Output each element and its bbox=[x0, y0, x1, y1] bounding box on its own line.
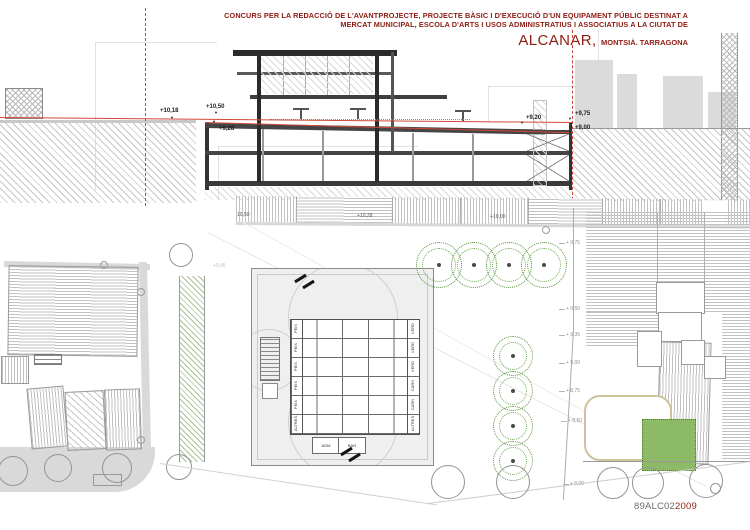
plan-level-label: + 8,75 bbox=[566, 389, 580, 394]
tree-icon bbox=[632, 467, 664, 499]
street-level-label: +10,28 bbox=[357, 214, 372, 219]
parcel-line bbox=[296, 196, 297, 222]
basement-column bbox=[472, 134, 474, 181]
plaza-level-label: +9,45 bbox=[213, 263, 226, 269]
title-city: ALCANAR, bbox=[518, 32, 596, 49]
existing-roof-hatch bbox=[26, 386, 68, 450]
manhole-icon bbox=[100, 261, 108, 269]
tree-icon bbox=[431, 465, 465, 499]
building-mass bbox=[575, 60, 613, 128]
stall-label: PEIX bbox=[290, 395, 301, 414]
sheet-code-year: 2009 bbox=[675, 501, 697, 512]
sheet-code: 89ALC022009 bbox=[634, 501, 697, 512]
basement-column bbox=[322, 131, 324, 181]
parcel bbox=[656, 282, 705, 314]
x-brace-panel bbox=[527, 134, 569, 151]
tree-icon bbox=[169, 243, 193, 267]
plan-level-label: + 8,50 bbox=[568, 419, 582, 424]
level-label: +10,18 bbox=[160, 108, 179, 114]
level-label: +9,75 bbox=[575, 111, 590, 117]
tree-icon bbox=[493, 406, 533, 446]
level-marker-icon bbox=[568, 131, 572, 135]
street-edge-line bbox=[160, 463, 437, 505]
green-plot bbox=[642, 419, 696, 471]
parcel bbox=[637, 331, 662, 367]
glazing-hatch bbox=[261, 56, 373, 94]
stall-label: ALTRES bbox=[407, 414, 418, 433]
stall-label: PEIX bbox=[290, 319, 301, 338]
stall-label: ALTRES bbox=[290, 414, 301, 433]
tree-icon bbox=[521, 242, 567, 288]
stall-label: CARN bbox=[407, 376, 418, 395]
basement-wall bbox=[205, 122, 209, 190]
plan-level-label: + 9,00 bbox=[566, 361, 580, 366]
canopy-slab bbox=[250, 95, 447, 99]
ground-hatch-left bbox=[0, 120, 196, 203]
building-mass bbox=[663, 76, 703, 128]
stall-grid bbox=[290, 319, 420, 435]
existing-roof-hatch bbox=[7, 265, 138, 357]
building-mass bbox=[617, 74, 637, 128]
red-dashed-axis bbox=[145, 8, 146, 206]
tree-icon bbox=[597, 467, 629, 499]
street-level-label: +10,00 bbox=[490, 215, 505, 220]
background-outline bbox=[95, 42, 217, 43]
parcel-line bbox=[528, 198, 529, 224]
street-edge-line bbox=[583, 461, 750, 462]
section-column bbox=[375, 50, 379, 182]
title-line1: CONCURS PER LA REDACCIÓ DE L'AVANTPROJEC… bbox=[140, 11, 688, 20]
existing-roof-hatch bbox=[64, 390, 106, 451]
stall-label: PEIX bbox=[290, 376, 301, 395]
tree-icon bbox=[710, 483, 721, 494]
stall-label: VERD bbox=[407, 357, 418, 376]
tree-icon bbox=[493, 371, 533, 411]
stall-label: CARN bbox=[407, 395, 418, 414]
entrance-slashes-icon bbox=[294, 277, 318, 290]
drawing-sheet: CONCURS PER LA REDACCIÓ DE L'AVANTPROJEC… bbox=[0, 0, 750, 530]
title-block: CONCURS PER LA REDACCIÓ DE L'AVANTPROJEC… bbox=[140, 11, 688, 50]
tree-icon bbox=[493, 336, 533, 376]
red-dashed-axis bbox=[572, 30, 573, 210]
level-label: +9,00 bbox=[575, 125, 590, 131]
parcel-hatch bbox=[296, 196, 392, 223]
level-marker-icon bbox=[170, 116, 174, 120]
stair-icon bbox=[34, 354, 62, 365]
plan-level-label: + 9,35 bbox=[566, 333, 580, 338]
parcel bbox=[681, 340, 705, 365]
parcel-line bbox=[392, 197, 393, 223]
stall-label: PEIX bbox=[290, 338, 301, 357]
basement-column bbox=[262, 129, 264, 181]
grid-line bbox=[302, 320, 303, 434]
tree-icon bbox=[44, 454, 72, 482]
manhole-icon bbox=[137, 288, 145, 296]
background-outline bbox=[488, 86, 489, 122]
stair-icon bbox=[260, 337, 280, 381]
sectioned-building-left bbox=[5, 88, 43, 119]
level-marker-icon bbox=[214, 111, 218, 115]
stall-label: PEIX bbox=[290, 357, 301, 376]
stall-label: VERD bbox=[407, 319, 418, 338]
stall-label: VERD bbox=[407, 338, 418, 357]
plan-level-label: + 9,75 bbox=[566, 241, 580, 246]
promenade-strip bbox=[179, 276, 205, 462]
parcel bbox=[704, 356, 726, 379]
manhole-icon bbox=[542, 226, 550, 234]
sheet-code-prefix: 89ALC02 bbox=[634, 501, 675, 512]
tree-icon bbox=[496, 465, 530, 499]
ground-hatch-right bbox=[573, 128, 750, 201]
section-column bbox=[391, 52, 394, 152]
stall-label-column-right: VERD VERD VERD CARN CARN ALTRES bbox=[407, 319, 418, 433]
level-marker-icon bbox=[568, 117, 572, 121]
title-line2: MERCAT MUNICIPAL, ESCOLA D'ARTS I USOS A… bbox=[140, 20, 688, 29]
parcel bbox=[658, 312, 702, 342]
planter bbox=[93, 474, 122, 486]
market-building-plan: PEIX PEIX PEIX PEIX PEIX ALTRES VERD VER… bbox=[251, 268, 434, 466]
level-label: +9,20 bbox=[526, 115, 541, 121]
entrance-slashes-icon bbox=[340, 450, 364, 463]
level-marker-icon bbox=[212, 120, 216, 124]
room-adm: ADM bbox=[312, 437, 340, 454]
plan-level-label: + 9,50 bbox=[566, 307, 580, 312]
background-outline bbox=[218, 146, 418, 147]
title-region: MONTSIÀ. TARRAGONA bbox=[601, 38, 688, 47]
level-label: +9,28 bbox=[219, 126, 234, 132]
existing-roof-hatch bbox=[722, 312, 750, 462]
manhole-icon bbox=[137, 436, 145, 444]
parcel-line bbox=[460, 198, 461, 224]
stall-label-column-left: PEIX PEIX PEIX PEIX PEIX ALTRES bbox=[290, 319, 301, 433]
basement-column bbox=[412, 133, 414, 181]
x-brace-panel bbox=[527, 155, 569, 181]
street-level-label: 10,50 bbox=[237, 213, 250, 218]
level-marker-icon bbox=[520, 121, 524, 125]
lift-icon bbox=[262, 383, 278, 399]
existing-roof-hatch bbox=[1, 356, 29, 384]
